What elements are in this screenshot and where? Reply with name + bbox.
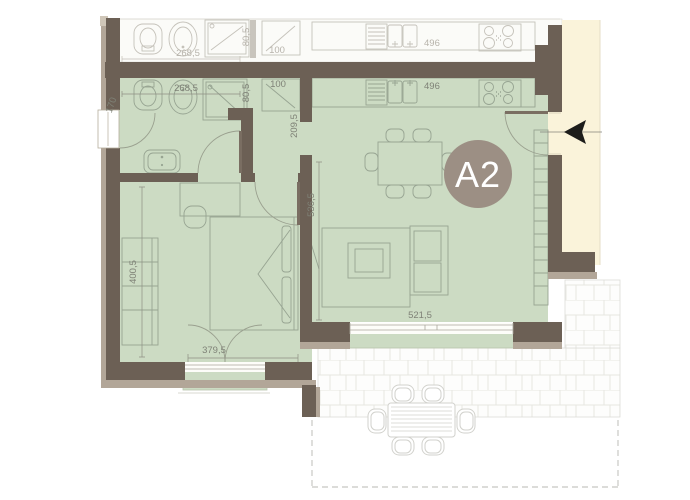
outdoor-table-slats [391, 407, 452, 431]
floor-plan-drawing: 268,5 80,5 100 496 268,5 80,5 100 496 17… [0, 0, 690, 500]
dim-label: 268,5 [174, 83, 198, 94]
corridor-floor [562, 20, 600, 265]
washbasin-drain [161, 164, 163, 166]
dim-label: 496 [424, 81, 440, 92]
dim-label: 100 [269, 45, 285, 56]
bathroom-door-leaf [239, 131, 242, 173]
dim-label: 400,5 [128, 260, 139, 284]
neighbor-wall-stub [535, 45, 550, 62]
entrance-threshold [548, 112, 562, 155]
wall-band-right [548, 272, 597, 279]
bathroom-south-wall [118, 173, 198, 182]
right-wall [548, 155, 562, 254]
bathroom-wall [228, 108, 253, 120]
bathroom-south-wall [298, 173, 312, 182]
dim-label: 80,5 [241, 84, 252, 103]
outdoor-chair-inner [371, 412, 384, 430]
dim-label: 100 [270, 79, 286, 90]
bedroom-door-leaf [297, 182, 300, 225]
right-wall [548, 25, 562, 112]
dim-label: 536,5 [306, 193, 317, 217]
bedroom-south-wall [265, 362, 312, 380]
living-window-ledge [347, 333, 516, 348]
terrace-tiles-side [565, 280, 620, 348]
right-wall-corner [548, 252, 595, 272]
bathroom-window [98, 110, 119, 148]
dim-label: 80,5 [241, 28, 252, 47]
wall-band-bottom-left [101, 380, 316, 388]
dim-label: 521,5 [408, 310, 432, 321]
bedroom-french-door [185, 362, 265, 372]
bedroom-south-wall [106, 362, 185, 380]
bathroom-wall [241, 120, 253, 182]
outdoor-table [388, 403, 455, 437]
outdoor-chair-inner [425, 440, 441, 453]
unit-badge-label: A2 [455, 154, 501, 195]
living-south-wall [300, 322, 350, 342]
terrace-tiles [318, 348, 620, 417]
unit-floor [118, 78, 548, 362]
unit-badge: A2 [444, 140, 512, 208]
wall-band-living [300, 342, 350, 349]
living-south-wall [513, 322, 562, 342]
terrace-pier [302, 385, 316, 417]
dim-label: 209,5 [289, 114, 300, 138]
bathroom-south-wall [241, 173, 255, 182]
outdoor-chair-inner [460, 412, 473, 430]
dim-label: 496 [424, 38, 440, 49]
left-wall [106, 148, 120, 362]
dim-label: 268,5 [176, 48, 200, 59]
dim-label: 379,5 [202, 345, 226, 356]
floor-plan: 268,5 80,5 100 496 268,5 80,5 100 496 17… [0, 0, 690, 500]
hall-wall [300, 78, 312, 122]
outdoor-chair-inner [395, 440, 411, 453]
washbasin-faucet [161, 156, 164, 159]
kitchen-wall-stub [535, 78, 550, 95]
outdoor-chair-inner [425, 388, 441, 401]
wall-band-pier [316, 387, 320, 417]
wall-band-living [513, 342, 562, 349]
party-wall [105, 62, 562, 78]
entrance-door-leaf [505, 111, 548, 114]
outdoor-chair-inner [395, 388, 411, 401]
